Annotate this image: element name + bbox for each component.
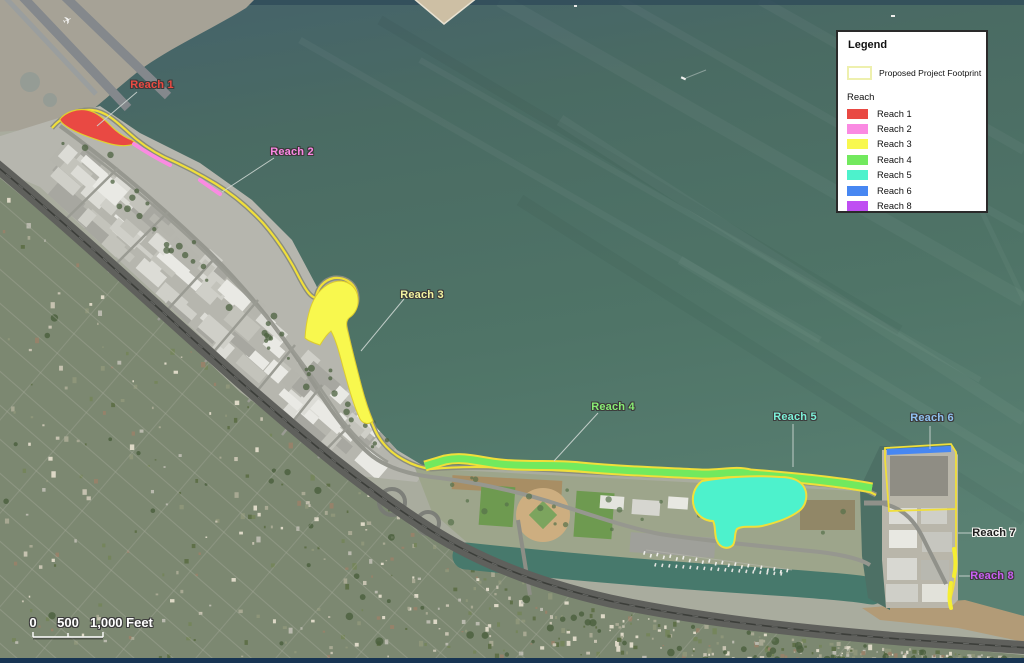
legend-title: Legend <box>848 39 887 51</box>
legend-item-label: Reach 1 <box>877 109 912 119</box>
scale-label-2: 1,000 Feet <box>90 615 153 630</box>
legend-item-label: Reach 5 <box>877 170 912 180</box>
footprint-label: Proposed Project Footprint <box>879 68 981 78</box>
legend-item-2: Reach 2 <box>847 121 912 136</box>
legend-swatch-4 <box>847 155 868 165</box>
legend-item-label: Reach 6 <box>877 186 912 196</box>
legend-item-6: Reach 6 <box>847 183 912 198</box>
scale-label-1: 500 <box>57 615 79 630</box>
scale-label-0: 0 <box>29 615 36 630</box>
legend-item-label: Reach 8 <box>877 201 912 211</box>
reach-6-area <box>887 449 951 452</box>
legend-item-3: Reach 3 <box>847 137 912 152</box>
legend-swatch-3 <box>847 139 868 149</box>
legend-items: Reach 1Reach 2Reach 3Reach 4Reach 5Reach… <box>847 106 912 214</box>
map-bottom-border <box>0 658 1024 663</box>
map-label-reach-3: Reach 3 <box>400 289 444 301</box>
legend-panel: Legend Proposed Project Footprint Reach … <box>836 30 988 213</box>
legend-item-label: Reach 3 <box>877 139 912 149</box>
legend-group-title: Reach <box>847 92 874 103</box>
map-canvas: ✈ <box>0 0 1024 663</box>
scale-bar: 05001,000 Feet <box>0 615 220 645</box>
legend-swatch-5 <box>847 170 868 180</box>
right-parcel <box>882 446 958 608</box>
legend-swatch-6 <box>847 186 868 196</box>
map-label-reach-6: Reach 6 <box>910 412 954 424</box>
map-label-reach-8: Reach 8 <box>970 570 1014 582</box>
map-label-reach-4: Reach 4 <box>591 401 635 413</box>
legend-item-7: Reach 8 <box>847 198 912 213</box>
legend-footprint-row: Proposed Project Footprint <box>847 66 981 80</box>
legend-swatch-7 <box>847 201 868 211</box>
map-label-reach-2: Reach 2 <box>270 146 314 158</box>
legend-swatch-1 <box>847 109 868 119</box>
legend-item-4: Reach 4 <box>847 152 912 167</box>
legend-swatch-2 <box>847 124 868 134</box>
legend-item-label: Reach 4 <box>877 155 912 165</box>
map-label-reach-5: Reach 5 <box>773 411 817 423</box>
legend-item-5: Reach 5 <box>847 168 912 183</box>
footprint-swatch <box>847 66 872 80</box>
legend-item-1: Reach 1 <box>847 106 912 121</box>
legend-item-label: Reach 2 <box>877 124 912 134</box>
map-label-reach-1: Reach 1 <box>130 79 174 91</box>
map-label-reach-7: Reach 7 <box>972 527 1016 539</box>
